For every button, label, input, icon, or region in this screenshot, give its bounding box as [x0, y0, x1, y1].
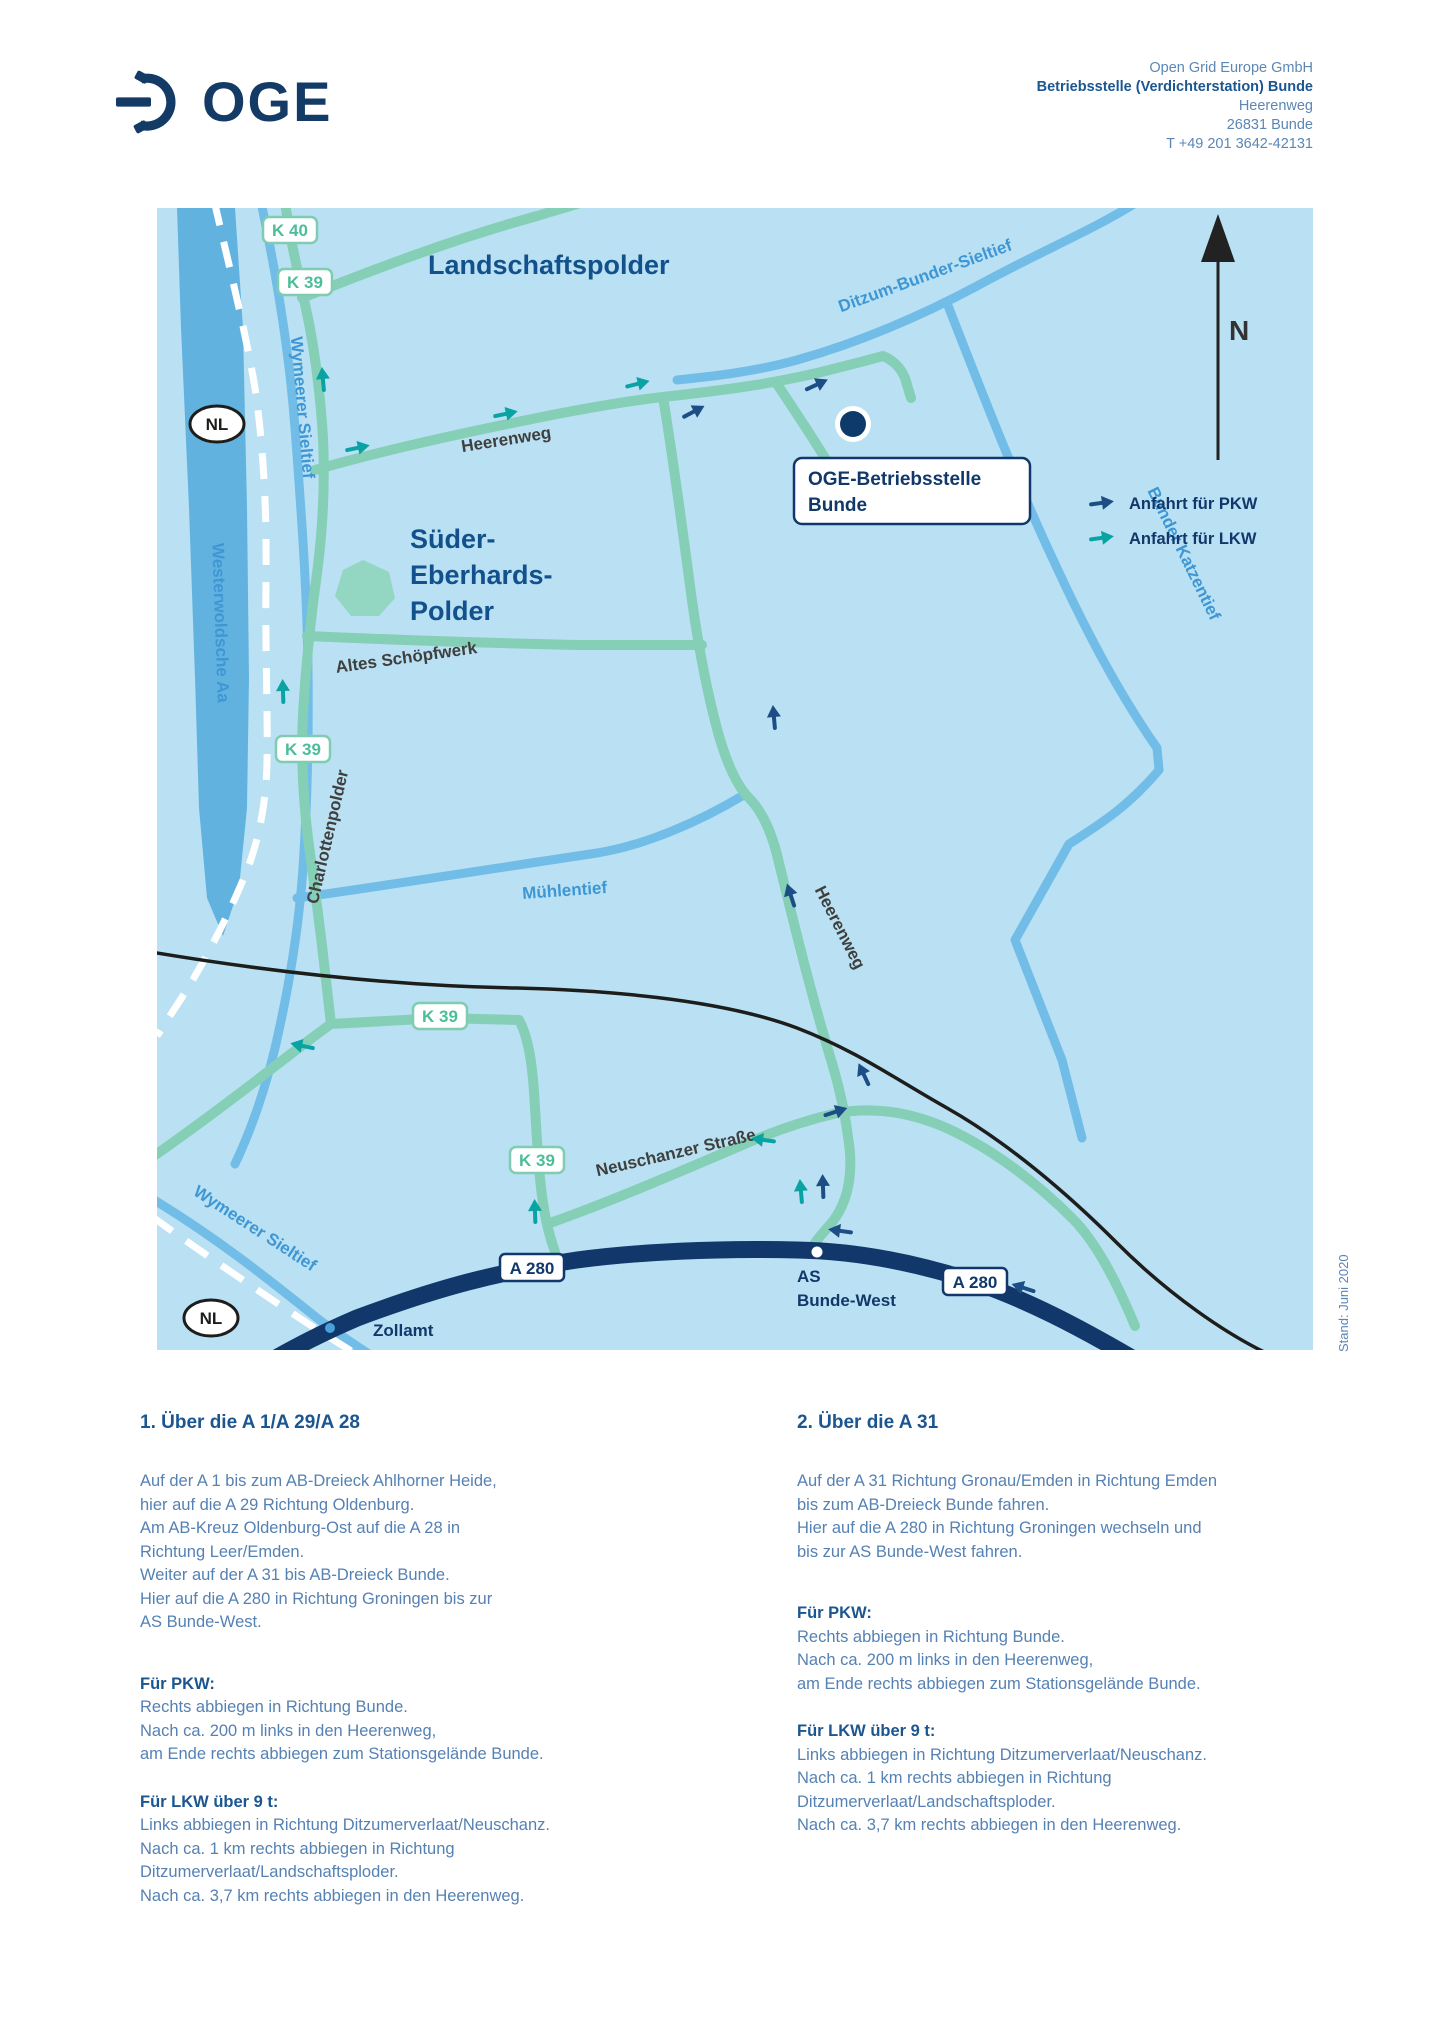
map-canvas: Wymeerer Sieltief Westerwoldsche Aa Ditz… [157, 208, 1313, 1350]
svg-text:K 39: K 39 [422, 1007, 458, 1026]
zollamt-dot [325, 1323, 335, 1333]
section-2-intro: Auf der A 31 Richtung Gronau/Emden in Ri… [797, 1470, 1342, 1564]
as-bunde-west-label-line1: AS [797, 1267, 821, 1286]
oge-logo-icon [116, 70, 186, 134]
oge-logo: OGE [116, 70, 332, 134]
badge-nl-top: NL [190, 406, 244, 442]
section-1-lkw-directions: Links abbiegen in Richtung Ditzumerverla… [140, 1814, 685, 1908]
section-1-pkw-title: Für PKW: [140, 1673, 685, 1697]
muehlentief-label: Mühlentief [522, 878, 608, 903]
lkw-arrow [626, 374, 652, 393]
section-2-pkw-directions: Rechts abbiegen in Richtung Bunde.Nach c… [797, 1626, 1342, 1697]
svg-text:K 39: K 39 [519, 1151, 555, 1170]
address-company: Open Grid Europe GmbH [1037, 59, 1313, 78]
pkw-arrow [766, 704, 782, 728]
badge-k39-3: K 39 [413, 1003, 467, 1029]
pkw-arrow [816, 1174, 831, 1197]
section-1-intro: Auf der A 1 bis zum AB-Dreieck Ahlhorner… [140, 1470, 685, 1635]
site-map: Wymeerer Sieltief Westerwoldsche Aa Ditz… [157, 208, 1313, 1350]
facility-label-line2: Bunde [808, 495, 867, 516]
directions-section-2: 2. Über die A 31 Auf der A 31 Richtung G… [797, 1412, 1342, 1838]
muehlentief-river [297, 796, 742, 898]
svg-text:K 40: K 40 [272, 221, 308, 240]
directions-section-1: 1. Über die A 1/A 29/A 28 Auf der A 1 bi… [140, 1412, 685, 1908]
legend-pkw-arrow-icon [1090, 494, 1115, 511]
stand-date-note: Stand: Juni 2020 [1336, 1254, 1351, 1352]
badge-a280-2: A 280 [943, 1268, 1007, 1295]
badge-nl-bottom: NL [184, 1300, 238, 1336]
sueder-eberhards-polder-line2: Eberhards- [410, 560, 553, 590]
ditzum-bunder-sieltief-river [677, 208, 1137, 380]
sueder-eberhards-polder-line3: Polder [410, 596, 495, 626]
lkw-arrow [276, 679, 291, 702]
as-bunde-west-dot [812, 1247, 823, 1258]
svg-text:NL: NL [200, 1309, 223, 1328]
road-altes-schoepfwerk [307, 636, 702, 645]
compass-n-label: N [1229, 315, 1249, 346]
section-2-pkw-title: Für PKW: [797, 1602, 1342, 1626]
address-phone: T +49 201 3642-42131 [1037, 135, 1313, 154]
badge-k39-4: K 39 [510, 1147, 564, 1173]
compass-north: N [1201, 214, 1249, 460]
lkw-route-arrows [276, 366, 809, 1222]
svg-text:A 280: A 280 [510, 1259, 555, 1278]
facility-label-box: OGE-Betriebsstelle Bunde [794, 458, 1030, 524]
legend-pkw-label: Anfahrt für PKW [1129, 495, 1258, 513]
heerenweg-south-label: Heerenweg [811, 883, 869, 972]
svg-text:A 280: A 280 [953, 1273, 998, 1292]
facility-marker-dot [840, 411, 866, 437]
section-1-lkw-title: Für LKW über 9 t: [140, 1791, 685, 1815]
bunder-katzentief-river [947, 303, 1159, 1138]
section-1-pkw-directions: Rechts abbiegen in Richtung Bunde.Nach c… [140, 1696, 685, 1767]
section-2-lkw-title: Für LKW über 9 t: [797, 1720, 1342, 1744]
section-2-heading: 2. Über die A 31 [797, 1412, 1342, 1434]
road-k39-horizontal [157, 1018, 555, 1252]
facility-label-line1: OGE-Betriebsstelle [808, 469, 981, 490]
legend-lkw-label: Anfahrt für LKW [1129, 530, 1257, 548]
badge-a280-1: A 280 [500, 1254, 564, 1281]
svg-text:K 39: K 39 [287, 273, 323, 292]
badge-k39-2: K 39 [276, 736, 330, 762]
address-city: 26831 Bunde [1037, 116, 1313, 135]
svg-text:K 39: K 39 [285, 740, 321, 759]
sueder-eberhards-polder-line1: Süder- [410, 524, 496, 554]
zollamt-label: Zollamt [373, 1321, 434, 1340]
as-bunde-west-label-line2: Bunde-West [797, 1291, 896, 1310]
section-1-heading: 1. Über die A 1/A 29/A 28 [140, 1412, 685, 1434]
svg-text:NL: NL [206, 415, 229, 434]
wymeerer-sieltief-label-bottom: Wymeerer Sieltief [190, 1182, 320, 1276]
address-street: Heerenweg [1037, 97, 1313, 116]
badge-k39-1: K 39 [278, 269, 332, 295]
legend-lkw-arrow-icon [1090, 529, 1115, 546]
lkw-arrow [793, 1178, 809, 1202]
landschaftspolder-label: Landschaftspolder [428, 250, 670, 280]
section-2-lkw-directions: Links abbiegen in Richtung Ditzumerverla… [797, 1744, 1342, 1838]
badge-k40: K 40 [263, 217, 317, 243]
address-site: Betriebsstelle (Verdichterstation) Bunde [1037, 78, 1313, 97]
oge-logo-text: OGE [202, 74, 332, 130]
address-block: Open Grid Europe GmbH Betriebsstelle (Ve… [1037, 59, 1313, 154]
pkw-arrow [681, 400, 708, 423]
schoepfwerk-pond [335, 560, 395, 616]
